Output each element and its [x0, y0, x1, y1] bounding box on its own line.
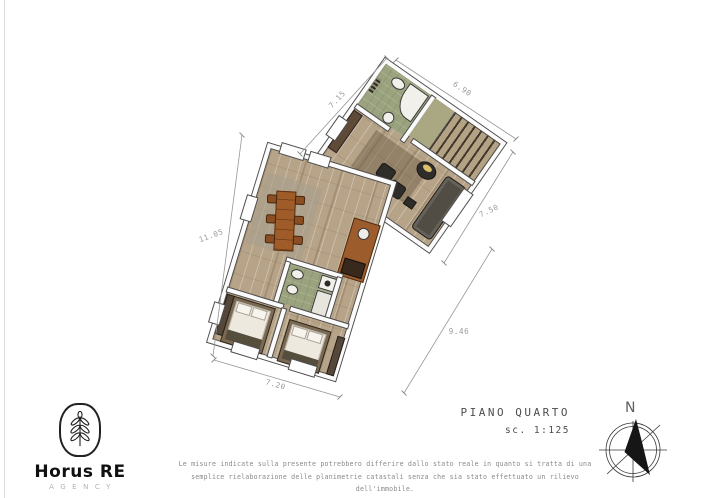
logo-oval [59, 403, 101, 457]
window [280, 143, 306, 160]
washer-door [324, 280, 331, 287]
title-block: PIANO QUARTO sc. 1:125 [461, 406, 570, 436]
dimension-label: 9.46 [449, 327, 469, 336]
brand-subtitle: AGENCY [28, 483, 132, 491]
chair-icon [294, 216, 304, 226]
wheat-sprig-icon [63, 407, 97, 453]
scale-label: sc. 1:125 [461, 425, 570, 436]
chair-icon [267, 194, 277, 204]
dimension-label: 7.20 [265, 377, 287, 391]
kitchen-sink-icon [356, 226, 371, 241]
disclaimer-line-2: semplice rielaborazione delle planimetri… [170, 471, 600, 496]
cushion [422, 163, 434, 174]
side-table-icon [403, 196, 417, 210]
radiator-icon [368, 77, 381, 93]
chair-icon [295, 196, 305, 206]
dimension-label: 6.90 [451, 80, 473, 99]
kitchen-counter-icon [336, 217, 380, 283]
disclaimer-line-1: Le misure indicate sulla presente potreb… [170, 458, 600, 471]
compass-needle [625, 419, 651, 475]
compass-north-label: N [625, 400, 635, 416]
dining-set [264, 186, 304, 256]
chair-icon [266, 214, 276, 224]
page-edge-line [4, 0, 5, 498]
compass-rose-icon: N [599, 400, 667, 482]
dimension-label: 11.05 [198, 227, 225, 244]
dimension-lower-right: 9.46 [402, 247, 495, 396]
dimension-label: 7.50 [478, 202, 500, 219]
dimension-label: 7.15 [327, 89, 348, 110]
chair-icon [293, 236, 303, 246]
floor-label: PIANO QUARTO [461, 406, 570, 419]
toilet-icon [290, 268, 305, 281]
disclaimer: Le misure indicate sulla presente potreb… [170, 458, 600, 496]
agency-logo: Horus RE AGENCY [28, 403, 132, 491]
brand-name: Horus RE [28, 462, 132, 482]
wardrobe-icon [326, 336, 345, 377]
floorplan-lower-unit [207, 143, 396, 381]
stove-icon [340, 257, 366, 279]
chair-icon [265, 234, 275, 244]
bidet-icon [285, 283, 299, 296]
